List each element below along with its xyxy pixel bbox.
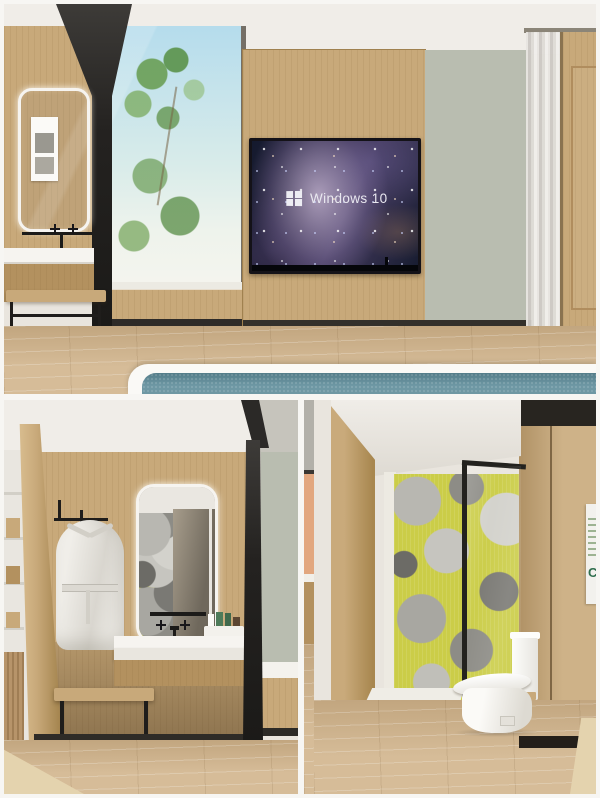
- adjacent-room-counter: [304, 574, 314, 582]
- structural-column: [243, 440, 263, 742]
- tv: Windows 10: [249, 138, 421, 274]
- adjacent-room-wall: [304, 400, 314, 470]
- stool-stretcher: [10, 314, 101, 317]
- window: [110, 26, 245, 282]
- shelf-box: [6, 566, 20, 584]
- bedroom-panel: Windows 10: [4, 4, 596, 394]
- window-glass-reflection: [110, 26, 245, 282]
- faucet-handle: [50, 224, 60, 234]
- tv-screen: Windows 10: [252, 141, 418, 271]
- slat-cabinet: [4, 652, 24, 740]
- towel-bar: [150, 612, 206, 616]
- vanity-mirror: [18, 88, 90, 232]
- sliding-door-recess: [571, 66, 596, 310]
- windows-logo-pane: [286, 199, 293, 206]
- toiletry-bottle: [216, 612, 223, 626]
- vanity-countertop: [114, 636, 246, 648]
- shelf-box: [6, 612, 20, 628]
- toiletry-bottle: [225, 613, 231, 626]
- robe-belt: [62, 584, 118, 592]
- sage-wall: [261, 452, 298, 664]
- faucet-spout: [60, 234, 63, 249]
- shelf-box: [6, 518, 20, 538]
- windows-logo-icon: [286, 191, 302, 206]
- render-collage: Windows 10: [0, 0, 600, 798]
- toilet-room-panel: C: [304, 400, 596, 794]
- sage-wall: [425, 50, 532, 328]
- left-wood-wall: [331, 406, 375, 742]
- bathtub-front: [261, 678, 298, 730]
- bathtub-base: [261, 728, 298, 736]
- tv-horizon-silhouette: [252, 265, 418, 271]
- vanity-bathroom-panel: [4, 400, 298, 794]
- sheer-curtain: [526, 32, 562, 340]
- sign-text-lines: [588, 518, 596, 558]
- robe-belt-tie: [86, 590, 90, 624]
- upper-dark-band: [519, 400, 596, 426]
- tv-brand: Windows 10: [286, 191, 388, 206]
- toilet-bowl: [462, 688, 532, 733]
- toiletry-bottle: [208, 614, 214, 626]
- faucet-handle: [180, 620, 190, 630]
- vanity-apron: [114, 660, 246, 686]
- adjacent-room-lit-wall: [304, 474, 314, 574]
- windows-logo-pane: [295, 191, 302, 198]
- lit-mirror: [136, 484, 218, 644]
- wall-sign: C: [586, 504, 596, 604]
- sign-logo-letter: C: [588, 566, 596, 579]
- toiletry-bottle: [233, 617, 240, 626]
- countertop-edge: [114, 648, 246, 660]
- faucet-handle: [68, 224, 78, 234]
- adjacent-room-floor: [304, 644, 314, 794]
- toilet-flush-panel: [500, 716, 515, 726]
- stool-seat: [6, 290, 106, 302]
- window-sill: [110, 282, 245, 289]
- windows-logo-pane: [295, 199, 302, 206]
- vanity-countertop: [4, 248, 94, 264]
- mirror-sheen: [21, 91, 87, 229]
- bathrobe: [56, 520, 124, 650]
- robe-collar: [66, 523, 92, 539]
- robe-collar: [88, 523, 114, 539]
- robe-rail-bracket: [58, 500, 61, 520]
- bench-seat: [54, 688, 154, 701]
- faucet-handle: [156, 620, 166, 630]
- tv-star-field: [252, 141, 418, 271]
- tv-figure-silhouette: [385, 257, 388, 266]
- windows-logo-pane: [286, 191, 293, 198]
- bed-blanket: [142, 373, 596, 394]
- sliding-door: [560, 32, 596, 342]
- adjacent-room-cabinet: [304, 582, 314, 644]
- tv-brand-text: Windows 10: [310, 191, 388, 206]
